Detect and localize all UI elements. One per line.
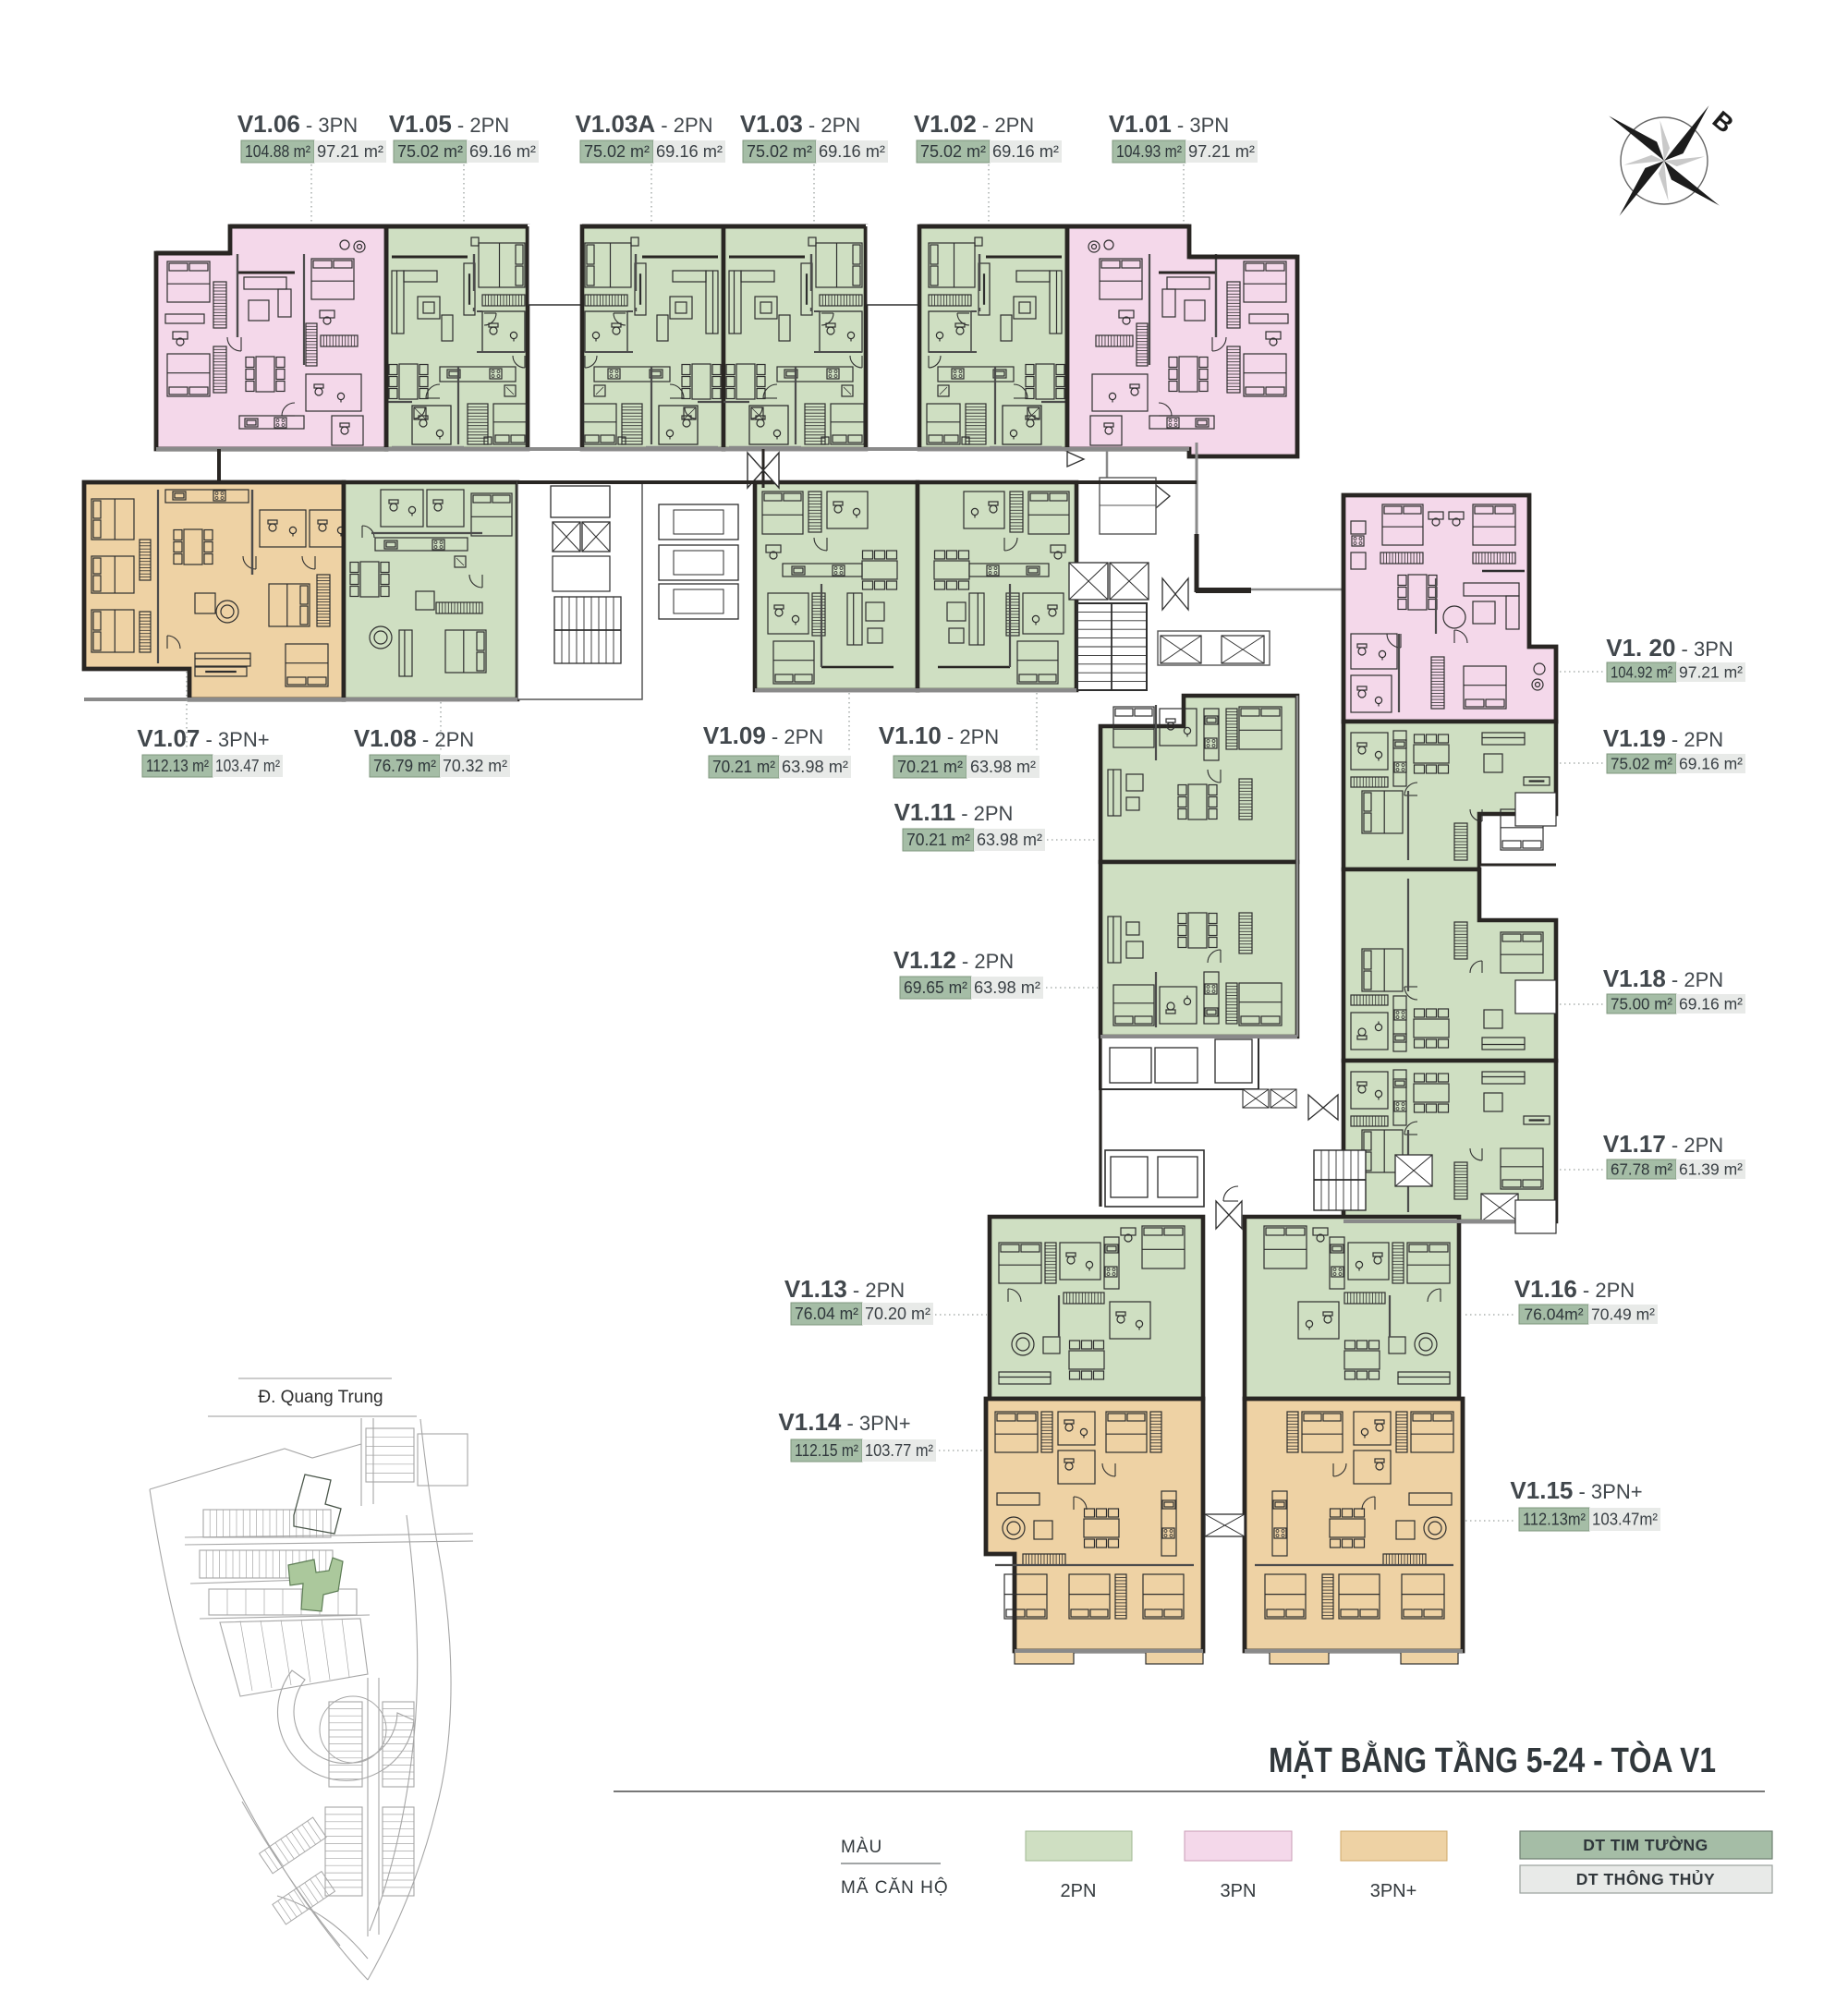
svg-text:75.02 m²: 75.02 m² (584, 142, 650, 161)
svg-text:75.00 m²: 75.00 m² (1611, 995, 1672, 1014)
svg-text:V1.09 - 2PN: V1.09 - 2PN (703, 722, 823, 749)
svg-text:V1.15 - 3PN+: V1.15 - 3PN+ (1510, 1476, 1642, 1504)
svg-text:63.98 m²: 63.98 m² (782, 758, 848, 776)
svg-text:104.92 m²: 104.92 m² (1611, 663, 1672, 682)
svg-text:75.02 m²: 75.02 m² (747, 142, 812, 161)
svg-text:70.21 m²: 70.21 m² (897, 758, 963, 776)
svg-text:97.21 m²: 97.21 m² (317, 142, 383, 161)
svg-text:MẶT BẰNG TẦNG 5-24 - TÒA V1: MẶT BẰNG TẦNG 5-24 - TÒA V1 (1269, 1740, 1716, 1780)
svg-text:V1.14 - 3PN+: V1.14 - 3PN+ (778, 1408, 910, 1436)
svg-text:MÀU: MÀU (841, 1838, 882, 1857)
svg-text:67.78 m²: 67.78 m² (1611, 1160, 1672, 1179)
svg-text:V1.11 - 2PN: V1.11 - 2PN (894, 798, 1014, 826)
svg-text:69.16 m²: 69.16 m² (992, 142, 1059, 161)
svg-text:76.79 m²: 76.79 m² (373, 757, 436, 775)
svg-text:69.16 m²: 69.16 m² (656, 142, 723, 161)
svg-text:V1.10 - 2PN: V1.10 - 2PN (879, 722, 999, 749)
svg-text:104.88 m²: 104.88 m² (245, 142, 310, 161)
svg-text:3PN: 3PN (1221, 1881, 1257, 1901)
svg-text:V1.17 - 2PN: V1.17 - 2PN (1603, 1130, 1723, 1158)
svg-text:V1.05 - 2PN: V1.05 - 2PN (389, 110, 509, 138)
svg-text:V1. 20 - 3PN: V1. 20 - 3PN (1606, 634, 1733, 662)
svg-text:76.04 m²: 76.04 m² (795, 1305, 858, 1323)
svg-text:104.93 m²: 104.93 m² (1116, 142, 1182, 161)
svg-text:61.39 m²: 61.39 m² (1679, 1160, 1743, 1179)
svg-text:103.47m²: 103.47m² (1592, 1511, 1658, 1529)
svg-text:V1.06 - 3PN: V1.06 - 3PN (237, 110, 358, 138)
svg-text:V1.03A - 2PN: V1.03A - 2PN (575, 110, 712, 138)
svg-text:97.21 m²: 97.21 m² (1188, 142, 1255, 161)
svg-text:V1.01 - 3PN: V1.01 - 3PN (1109, 110, 1229, 138)
svg-text:V1.13 - 2PN: V1.13 - 2PN (784, 1275, 905, 1303)
svg-text:103.77 m²: 103.77 m² (865, 1441, 933, 1460)
svg-text:V1.07 - 3PN+: V1.07 - 3PN+ (137, 724, 269, 752)
svg-text:63.98 m²: 63.98 m² (977, 831, 1042, 849)
svg-text:69.16 m²: 69.16 m² (1679, 755, 1743, 773)
svg-text:V1.08 - 2PN: V1.08 - 2PN (354, 724, 474, 752)
svg-text:63.98 m²: 63.98 m² (970, 758, 1036, 776)
svg-text:70.21 m²: 70.21 m² (712, 758, 775, 776)
svg-text:69.16 m²: 69.16 m² (469, 142, 536, 161)
svg-text:2PN: 2PN (1061, 1881, 1097, 1901)
svg-text:V1.12 - 2PN: V1.12 - 2PN (894, 946, 1014, 974)
svg-text:69.16 m²: 69.16 m² (819, 142, 885, 161)
svg-text:V1.03 - 2PN: V1.03 - 2PN (740, 110, 860, 138)
svg-text:70.21 m²: 70.21 m² (906, 831, 970, 849)
svg-text:69.65 m²: 69.65 m² (904, 978, 967, 997)
svg-text:V1.16 - 2PN: V1.16 - 2PN (1514, 1275, 1635, 1303)
svg-text:MÃ CĂN HỘ: MÃ CĂN HỘ (841, 1877, 949, 1898)
svg-text:112.15 m²: 112.15 m² (795, 1441, 858, 1460)
svg-text:112.13 m²: 112.13 m² (146, 757, 209, 775)
svg-text:V1.02 - 2PN: V1.02 - 2PN (914, 110, 1034, 138)
svg-text:70.20 m²: 70.20 m² (865, 1305, 930, 1323)
svg-text:63.98 m²: 63.98 m² (974, 978, 1040, 997)
svg-text:70.32 m²: 70.32 m² (443, 757, 507, 775)
svg-text:75.02 m²: 75.02 m² (920, 142, 986, 161)
svg-text:103.47 m²: 103.47 m² (215, 757, 280, 775)
svg-text:76.04m²: 76.04m² (1524, 1305, 1583, 1324)
svg-text:3PN+: 3PN+ (1370, 1881, 1417, 1901)
svg-text:V1.18 - 2PN: V1.18 - 2PN (1603, 965, 1723, 992)
svg-text:75.02 m²: 75.02 m² (1611, 755, 1672, 773)
svg-text:112.13m²: 112.13m² (1523, 1511, 1586, 1529)
svg-text:DT THÔNG THỦY: DT THÔNG THỦY (1576, 1869, 1715, 1888)
svg-text:DT TIM TƯỜNG: DT TIM TƯỜNG (1583, 1835, 1708, 1854)
svg-text:69.16 m²: 69.16 m² (1679, 995, 1743, 1014)
svg-text:97.21 m²: 97.21 m² (1679, 663, 1743, 682)
svg-text:Đ. Quang Trung: Đ. Quang Trung (258, 1388, 383, 1407)
svg-text:70.49 m²: 70.49 m² (1591, 1305, 1655, 1324)
svg-text:V1.19 - 2PN: V1.19 - 2PN (1603, 724, 1723, 752)
svg-text:75.02 m²: 75.02 m² (397, 142, 463, 161)
